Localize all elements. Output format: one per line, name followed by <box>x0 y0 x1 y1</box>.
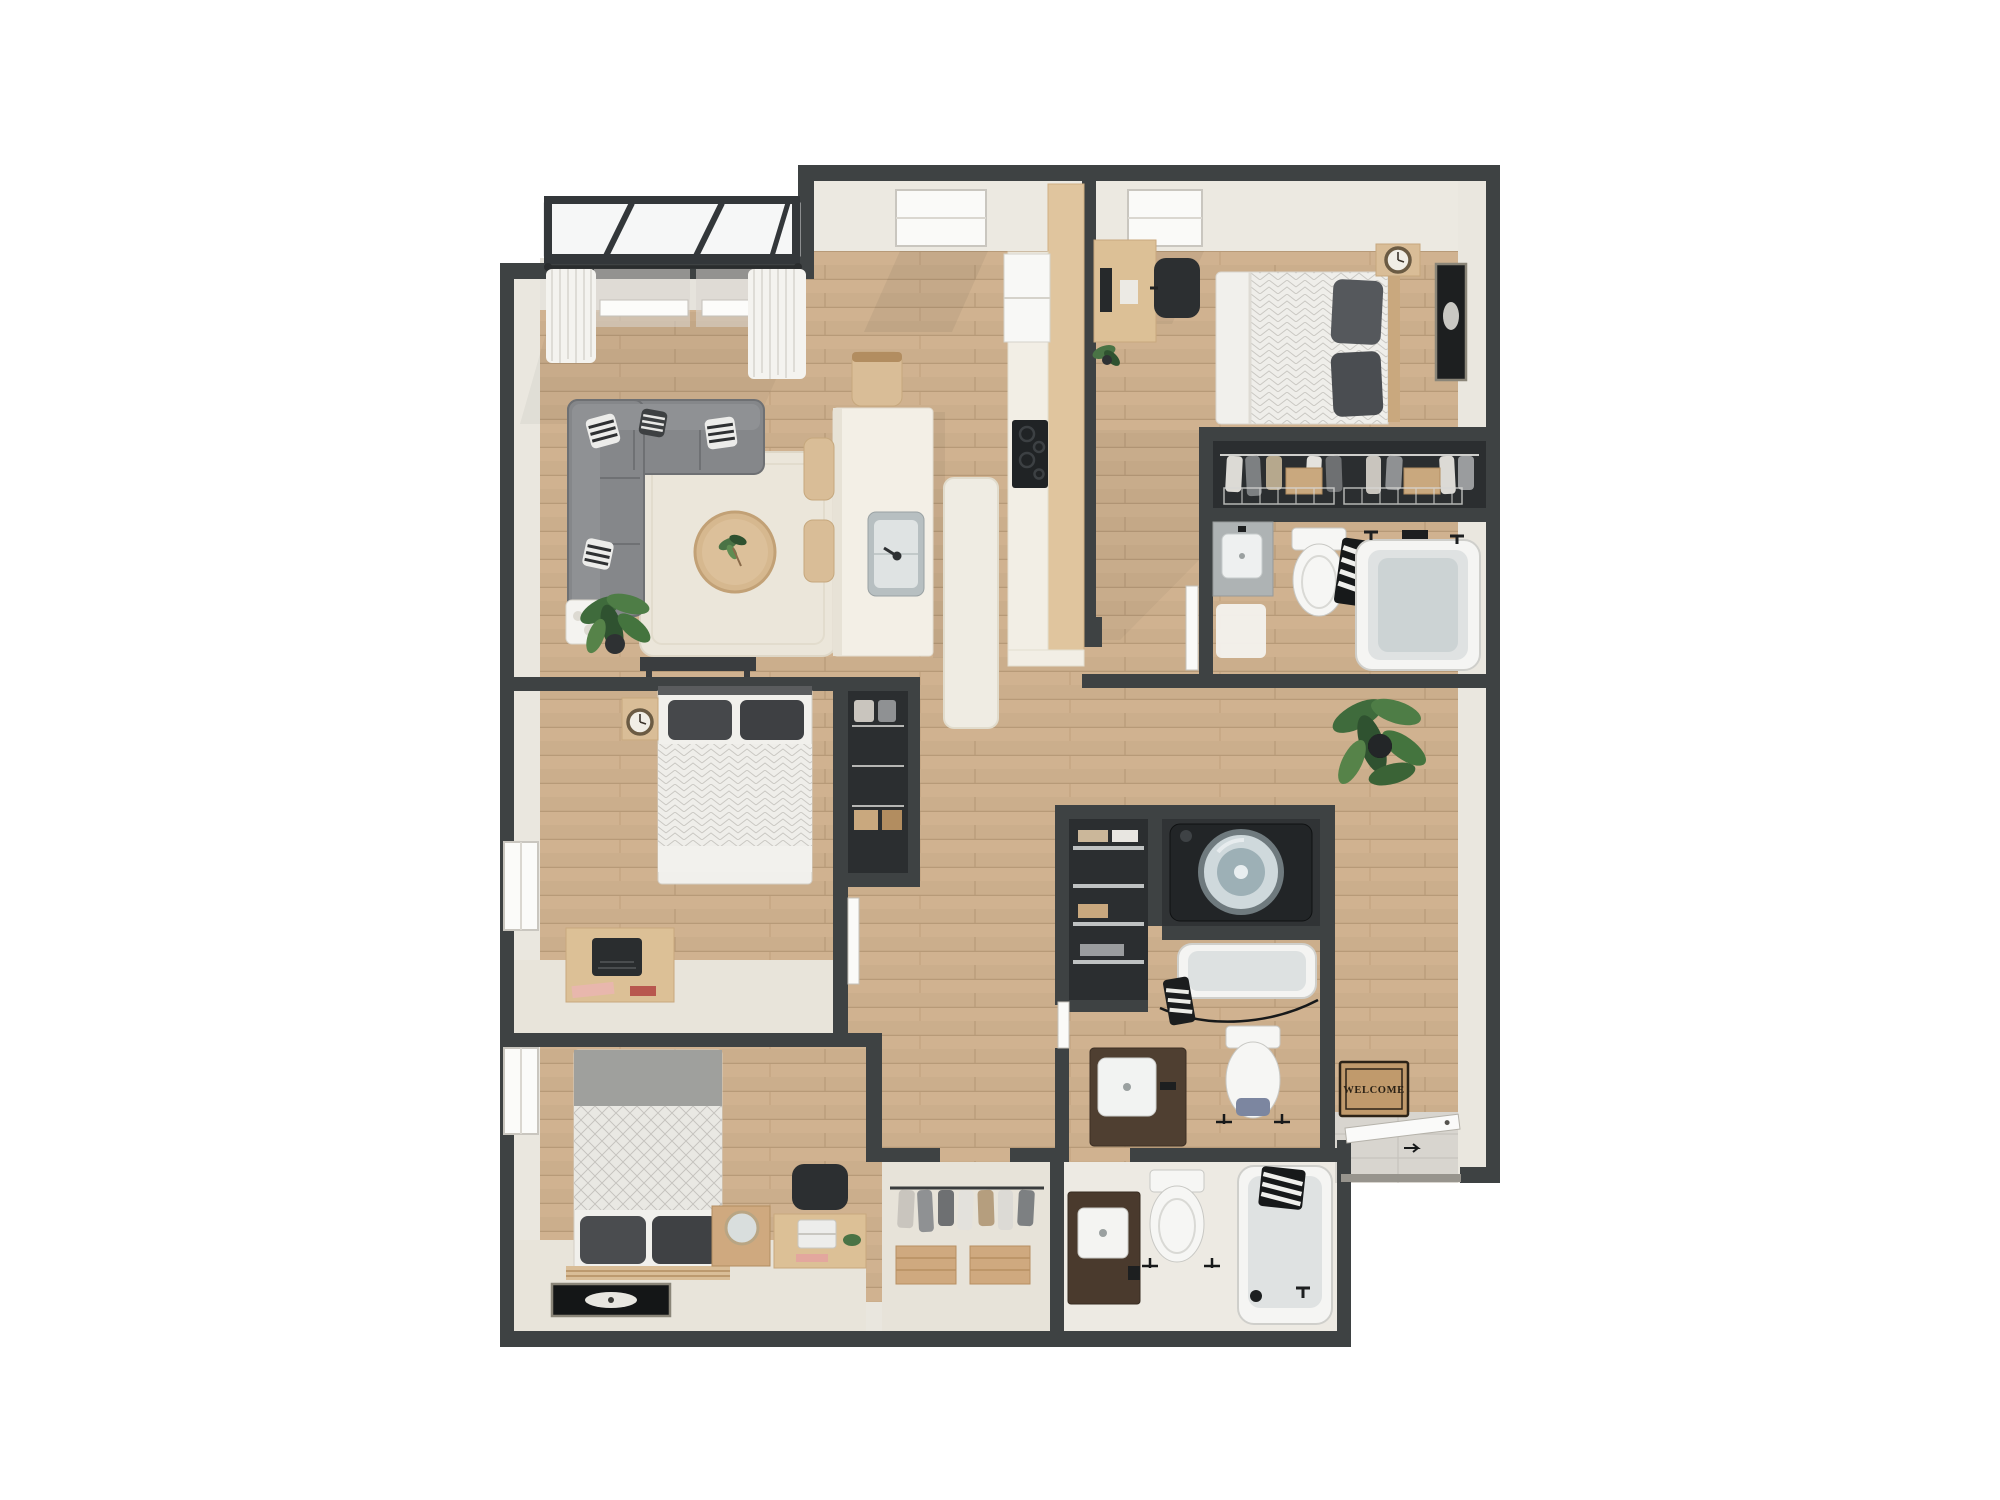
striped-pillow <box>704 416 738 450</box>
bedroom1-desk <box>1094 240 1156 342</box>
pillow <box>1330 279 1383 346</box>
wall-laundry-west-a <box>1055 805 1069 1005</box>
books <box>796 1254 828 1262</box>
cooktop <box>1012 420 1048 488</box>
hanging-clothes <box>878 700 896 722</box>
bed <box>566 1050 730 1280</box>
typewriter <box>592 938 642 976</box>
folded-blanket <box>574 1050 722 1106</box>
wall-laundry-north <box>1055 805 1320 819</box>
striped-pillow <box>581 537 614 570</box>
storage-bench <box>896 1246 956 1284</box>
bathtub <box>1238 1166 1332 1324</box>
vanity-sink <box>1213 522 1273 596</box>
wall-laundry-west-b <box>1055 1048 1069 1162</box>
wall-outer-top-main <box>798 165 1500 181</box>
closet-1 <box>1213 441 1486 508</box>
bathtub <box>1356 530 1480 670</box>
welcome-mat-text: WELCOME <box>1343 1085 1404 1096</box>
wall-outer-left <box>500 263 514 1347</box>
closet-niche <box>848 691 908 873</box>
wall-bath2-east <box>1320 805 1335 1162</box>
wall-closet-niche-bottom <box>848 873 920 887</box>
tub-faucet <box>1402 530 1428 539</box>
headboard <box>1388 276 1400 422</box>
door-threshold <box>1341 1174 1461 1182</box>
sheer-shade <box>594 269 690 327</box>
desk-chair <box>1150 258 1200 318</box>
wall-outer-bottom <box>500 1331 1351 1347</box>
balcony-rail-bottom <box>544 254 800 264</box>
dining-chair <box>852 352 902 406</box>
wall-bedroom3-right <box>866 1047 882 1162</box>
storage-bench <box>970 1246 1030 1284</box>
desk-with-laptop <box>774 1214 866 1268</box>
kitchen-counter-run <box>1004 184 1084 666</box>
storage-box <box>882 810 902 830</box>
wall-bath1-south <box>1082 674 1500 688</box>
wall-bedroom2-bedroom3 <box>500 1033 882 1047</box>
living-room <box>544 263 836 677</box>
window <box>702 300 752 316</box>
wall-shelf-washer-div <box>1148 819 1162 926</box>
folded-towels <box>1080 944 1124 956</box>
desk-with-typewriter <box>566 928 674 1002</box>
pillow <box>652 1216 718 1264</box>
striped-pillow <box>638 408 668 438</box>
welcome-mat: WELCOME <box>1340 1062 1408 1116</box>
washer-knob <box>1180 830 1192 842</box>
wall-face-left <box>514 279 540 1331</box>
pillow <box>1330 351 1383 418</box>
storage-box <box>854 810 878 830</box>
crate-nightstand-with-mirror <box>712 1206 770 1266</box>
sheer-shade <box>696 269 754 327</box>
bar-chair <box>804 520 834 582</box>
wall-closet1-west <box>1199 427 1213 688</box>
folded-towels <box>1112 830 1138 842</box>
wire-shelving-closet <box>1069 819 1148 1000</box>
small-plant <box>843 1234 861 1246</box>
plant-pot <box>605 634 625 654</box>
plant-pot <box>1368 734 1392 758</box>
bathroom1-door <box>1186 586 1198 670</box>
kitchen-island <box>833 408 933 656</box>
curtain-left <box>546 269 596 363</box>
pillow <box>740 700 804 740</box>
faucet <box>1128 1266 1140 1280</box>
wall-hall-closet2-a <box>866 1148 940 1162</box>
wall-art <box>1436 264 1466 380</box>
wall-washer-bottom <box>1162 926 1320 940</box>
window <box>600 300 688 316</box>
nightstand-with-clock <box>622 698 658 740</box>
pillow <box>580 1216 646 1264</box>
pillow <box>668 700 732 740</box>
vanity-sink <box>1068 1192 1140 1304</box>
storage-box <box>1078 904 1108 918</box>
hanging-clothes <box>854 700 874 722</box>
vanity-sink <box>1090 1048 1186 1146</box>
round-coffee-table <box>695 512 775 592</box>
monitor <box>1100 268 1112 312</box>
keyboard <box>1120 280 1138 304</box>
wall-closet2-bath3 <box>1050 1162 1064 1331</box>
bar-chair <box>804 438 834 500</box>
bath-mat <box>1216 604 1266 658</box>
balcony <box>544 196 800 264</box>
folded-towels <box>1078 830 1108 842</box>
wall-entry-bottom-stub-right <box>1460 1167 1500 1183</box>
floor-plan-render: WELCOME <box>0 0 2000 1500</box>
bed <box>1216 272 1400 424</box>
nightstand-with-clock <box>1376 244 1420 276</box>
round-mirror <box>726 1212 758 1244</box>
toilet-mat <box>1236 1098 1270 1116</box>
bedroom2-door <box>848 898 859 984</box>
tall-wood-cabinet <box>1048 184 1084 664</box>
wall-bedroom2-right <box>833 691 848 1033</box>
desk-chair <box>792 1164 848 1210</box>
wall-closet1-bath1 <box>1199 508 1500 522</box>
wall-shelf-bottom <box>1069 1000 1148 1012</box>
curtain-right <box>748 269 806 379</box>
slat-headboard <box>566 1266 730 1280</box>
wall-closet-niche-right <box>908 691 920 887</box>
floor-plan-stage: WELCOME <box>0 0 2000 1500</box>
wall-bedroom1-closet1 <box>1199 427 1500 441</box>
runner-rug <box>944 478 998 728</box>
balcony-rail-top <box>544 196 800 204</box>
bed <box>658 686 812 884</box>
faucet <box>1238 526 1246 532</box>
striped-towel <box>1258 1166 1306 1210</box>
book <box>630 986 656 996</box>
bathtub <box>1178 944 1316 998</box>
storage-box <box>1286 468 1322 494</box>
washing-machine <box>1162 819 1320 926</box>
wall-hall-bath3 <box>1130 1148 1337 1162</box>
sheet-fold <box>658 846 812 872</box>
counter-end <box>1008 650 1084 666</box>
faucet <box>1160 1082 1176 1090</box>
bathroom2-door <box>1058 1002 1069 1048</box>
balcony-glass <box>544 203 800 256</box>
flower-art-rug <box>552 1284 670 1316</box>
headboard <box>658 686 812 695</box>
tub-faucet <box>1250 1290 1262 1302</box>
